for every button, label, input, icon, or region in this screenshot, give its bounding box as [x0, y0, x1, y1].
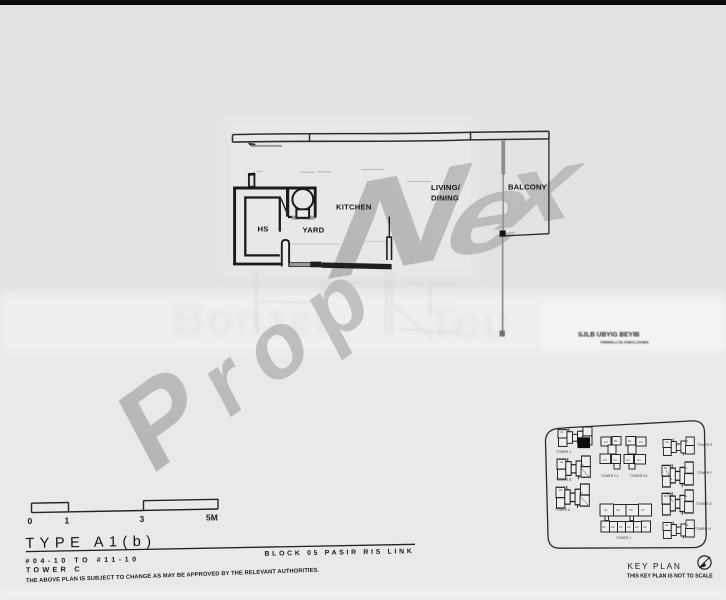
svg-text:C3: C3 — [580, 463, 584, 467]
svg-text:C8: C8 — [616, 508, 620, 512]
svg-text:A2: A2 — [602, 525, 606, 529]
svg-text:SJLB UBYIG BEYIB: SJLB UBYIG BEYIB — [578, 332, 640, 339]
svg-text:C8: C8 — [629, 508, 633, 512]
svg-text:B1: B1 — [685, 439, 689, 443]
svg-text:A1: A1 — [685, 523, 689, 527]
svg-text:BALCONY: BALCONY — [508, 182, 547, 191]
svg-text:TOWER D1: TOWER D1 — [630, 474, 648, 478]
svg-text:TOWER F: TOWER F — [697, 471, 712, 475]
svg-text:HS: HS — [258, 224, 269, 233]
svg-text:B1: B1 — [664, 466, 668, 470]
svg-text:Tou: Tou — [428, 299, 511, 348]
svg-text:C4: C4 — [639, 440, 643, 444]
svg-text:A3: A3 — [619, 525, 623, 529]
svg-text:1: 1 — [65, 515, 70, 525]
svg-text:C1: C1 — [604, 508, 608, 512]
svg-text:0: 0 — [28, 516, 33, 526]
svg-text:TOWER B: TOWER B — [556, 478, 572, 482]
svg-text:A1: A1 — [665, 523, 669, 527]
svg-text:LIVING/: LIVING/ — [431, 183, 461, 192]
svg-text:B1: B1 — [559, 488, 563, 492]
svg-text:C1: C1 — [580, 429, 584, 433]
svg-text:BLOCK 05 PASIR RIS LINK: BLOCK 05 PASIR RIS LINK — [264, 548, 414, 558]
svg-text:TOWER C1: TOWER C1 — [601, 474, 619, 478]
svg-text:A3: A3 — [627, 525, 631, 529]
svg-text:C4: C4 — [665, 440, 669, 444]
svg-text:B1: B1 — [628, 439, 632, 443]
svg-text:TMWNLLTA IOBCLSVMA: TMWNLLTA IOBCLSVMA — [600, 340, 649, 345]
svg-text:C4: C4 — [604, 440, 608, 444]
svg-text:YARD: YARD — [303, 225, 325, 234]
svg-text:3: 3 — [140, 514, 145, 524]
svg-text:C1: C1 — [560, 430, 564, 434]
svg-text:TOWER G: TOWER G — [696, 502, 712, 506]
svg-text:A3: A3 — [611, 525, 615, 529]
svg-text:TOWER E: TOWER E — [697, 443, 713, 447]
svg-text:KEY PLAN: KEY PLAN — [628, 561, 682, 571]
svg-text:KITCHEN: KITCHEN — [336, 202, 372, 211]
svg-text:C4: C4 — [613, 458, 617, 462]
svg-text:C4: C4 — [603, 458, 607, 462]
svg-text:A2: A2 — [643, 525, 647, 529]
svg-text:DINING: DINING — [431, 193, 459, 202]
svg-text:B1: B1 — [684, 494, 688, 498]
svg-text:TOWER H: TOWER H — [695, 527, 711, 531]
svg-text:B1: B1 — [614, 439, 618, 443]
svg-text:TOWER C: TOWER C — [556, 450, 572, 454]
svg-text:A1: A1 — [560, 460, 564, 464]
svg-text:5M: 5M — [206, 513, 218, 523]
svg-text:TOWER J: TOWER J — [616, 536, 631, 540]
svg-text:C3: C3 — [579, 491, 583, 495]
svg-text:TOWER C: TOWER C — [26, 564, 83, 574]
svg-text:B1: B1 — [684, 466, 688, 470]
svg-text:C7: C7 — [641, 508, 645, 512]
svg-text:C4: C4 — [637, 458, 641, 462]
svg-text:B2: B2 — [664, 494, 668, 498]
svg-text:A3: A3 — [635, 525, 639, 529]
svg-text:THIS KEY PLAN IS NOT TO SCALE: THIS KEY PLAN IS NOT TO SCALE — [627, 574, 713, 580]
svg-text:TOWER A: TOWER A — [555, 508, 571, 512]
svg-text:C4: C4 — [626, 458, 630, 462]
